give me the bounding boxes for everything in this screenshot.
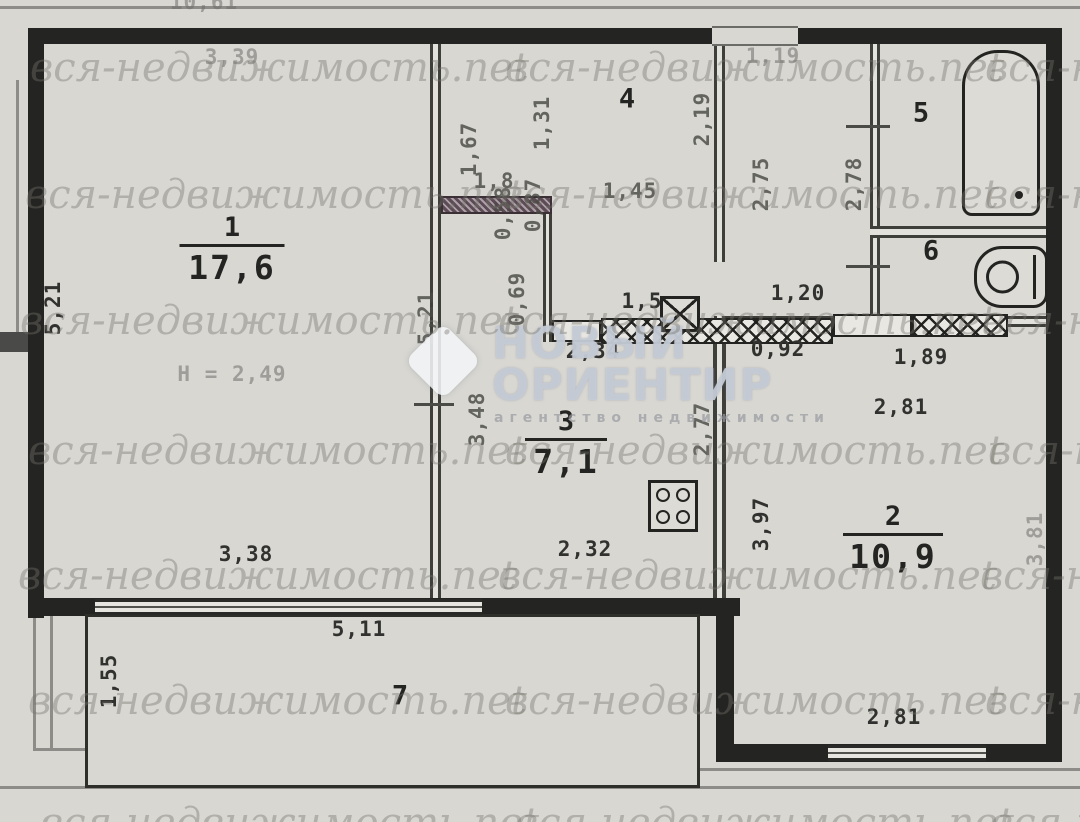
room2-door-sill — [833, 314, 912, 337]
wall-outer-top — [28, 28, 1062, 44]
dimension-label: 5,11 — [332, 617, 387, 641]
dimension-label: 1,89 — [894, 345, 949, 369]
dimension-label: 2,78 — [842, 157, 866, 212]
building-outline-top — [0, 6, 1080, 9]
room-area: 17,6 — [188, 251, 275, 284]
room-label-7: 7 — [392, 681, 408, 712]
dimension-label: 2,75 — [749, 157, 773, 212]
dimension-label: 2,34 — [566, 339, 621, 363]
dim-tick-room6 — [846, 265, 890, 268]
room-label-4: 4 — [619, 84, 635, 115]
dimension-label: 2,32 — [558, 537, 613, 561]
dimension-label: 1,20 — [771, 281, 826, 305]
watermark-text: вся-недвижимость.net — [40, 800, 539, 822]
room-number: 1 — [224, 214, 240, 241]
watermark-text: вся-недвижимость.net — [990, 800, 1080, 822]
wall-outer-right — [1046, 28, 1062, 762]
room-label-6: 6 — [923, 236, 939, 267]
dimension-label: 1,45 — [603, 179, 658, 203]
room-label-2: 210,9 — [843, 503, 943, 573]
room-label-3: 37,1 — [525, 408, 607, 478]
annex-line-1 — [50, 616, 53, 750]
dimension-label: 10,61 — [170, 0, 238, 14]
stove-burner-icon — [656, 510, 670, 524]
dimension-label: 2,19 — [690, 92, 714, 147]
dimension-label: 2,77 — [690, 402, 714, 457]
dimension-label: 3,48 — [465, 392, 489, 447]
room-label-1: 117,6 — [180, 214, 285, 284]
dimension-label: 1,19 — [746, 44, 801, 68]
dimension-label: 5,21 — [41, 281, 65, 336]
hallway-door-opening — [712, 262, 727, 316]
dimension-label: 0,69 — [505, 272, 529, 327]
dimension-label: 1,31 — [530, 96, 554, 151]
room-label-underline — [843, 533, 943, 536]
watermark-text: вся-недвижимость.net — [988, 428, 1080, 474]
building-outline-left — [16, 80, 19, 335]
floor-plan: НОВЫЙ ОРИЕНТИР агентство недвижимости 10… — [0, 0, 1080, 822]
room2-hatched-wall — [912, 314, 1008, 337]
wall-room2-left — [713, 330, 726, 598]
wall-bathroom-left — [870, 44, 880, 318]
wall-stub-left — [0, 332, 28, 352]
toilet-tank-line — [1033, 255, 1036, 299]
room-number: 2 — [885, 503, 901, 530]
dimension-label: 1,55 — [97, 654, 121, 709]
dimension-label: 2,81 — [874, 395, 929, 419]
watermark-text: вся-недвижимость.net — [28, 428, 527, 474]
watermark-text: вся-недвижимость.net — [20, 298, 519, 344]
room-label-underline — [525, 438, 607, 441]
room-label-underline — [180, 244, 285, 247]
stove-icon — [648, 480, 698, 532]
dimension-label: 3,38 — [219, 542, 274, 566]
room-area: 10,9 — [849, 540, 936, 573]
dimension-label: 3,97 — [749, 497, 773, 552]
dimension-label: 5,21 — [414, 291, 438, 346]
dimension-label: 3,81 — [1023, 512, 1047, 567]
toilet-bowl-icon — [986, 261, 1019, 294]
annex-line-3 — [33, 748, 88, 751]
dimension-label: 0,92 — [751, 337, 806, 361]
wall-bottom-right-vertical — [716, 598, 734, 762]
dim-tick-room5 — [846, 125, 890, 128]
room-label-5: 5 — [913, 98, 929, 129]
room-area: 7,1 — [533, 445, 599, 478]
dimension-label: 0,87 — [521, 178, 545, 233]
wall-room2-top-right — [1008, 316, 1046, 327]
watermark-text: вся-недвижимость.net — [515, 800, 1014, 822]
annex-line-2 — [33, 616, 36, 750]
watermark-text: вся-недвижимость.net — [30, 45, 529, 91]
vent-shaft-icon — [660, 296, 700, 332]
building-outline-bottom-right — [700, 768, 1080, 771]
dimension-label: 0,58 — [491, 186, 515, 241]
room-number: 3 — [558, 408, 574, 435]
bathtub-icon — [962, 50, 1040, 216]
logo-title-line2: ОРИЕНТИР — [492, 364, 772, 408]
watermark-text: вся-недвижимость.net — [985, 678, 1080, 724]
dimension-label: 2,81 — [867, 705, 922, 729]
stove-burner-icon — [656, 488, 670, 502]
stove-burner-icon — [676, 488, 690, 502]
dimension-label: 1,5 — [622, 289, 663, 313]
window-room2 — [828, 745, 986, 761]
bathtub-drain-icon — [1015, 191, 1023, 199]
entrance-door-opening — [712, 26, 798, 46]
dimension-label: H = 2,49 — [177, 362, 286, 386]
stove-burner-icon — [676, 510, 690, 524]
wall-bath-toilet-divider — [870, 226, 1046, 238]
toilet-icon — [974, 246, 1048, 308]
window-room1 — [95, 599, 482, 615]
dim-tick-room1 — [414, 403, 454, 406]
dimension-label: 3,39 — [205, 45, 260, 69]
